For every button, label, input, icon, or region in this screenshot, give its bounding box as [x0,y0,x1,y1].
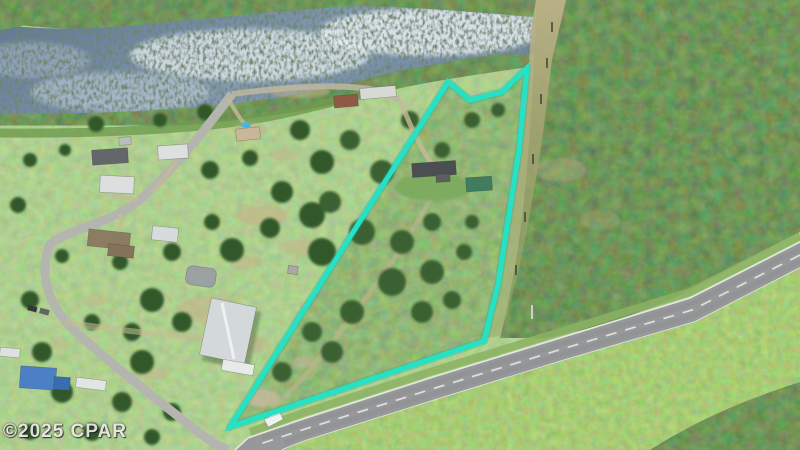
building-brown-l-house-wing [107,244,134,259]
watermark: ©2025 CPAR [3,421,127,443]
building-dark-roof-house-west [92,148,129,165]
building-blue-tarp-shed [54,376,71,390]
building-white-farmhouse [100,175,135,194]
property-lawn [395,173,471,201]
vehicle-white-van [0,347,20,358]
roadside-pole [531,305,533,319]
building-tiny-shed [288,265,299,274]
building-white-carport [151,226,178,243]
building-small-shed [119,137,132,146]
building-blue-tarp-house [19,366,56,390]
swimming-pool [241,122,251,128]
building-red-roof-house [334,94,359,108]
building-property-house-wing [436,174,451,183]
aerial-photo: ©2025 CPAR [0,0,800,450]
building-tan-house-ne [235,127,260,141]
building-green-roof-barn [466,176,493,192]
building-quonset-barn [185,265,217,288]
building-white-house-mid [158,144,189,160]
aerial-photo-canvas [0,0,800,450]
